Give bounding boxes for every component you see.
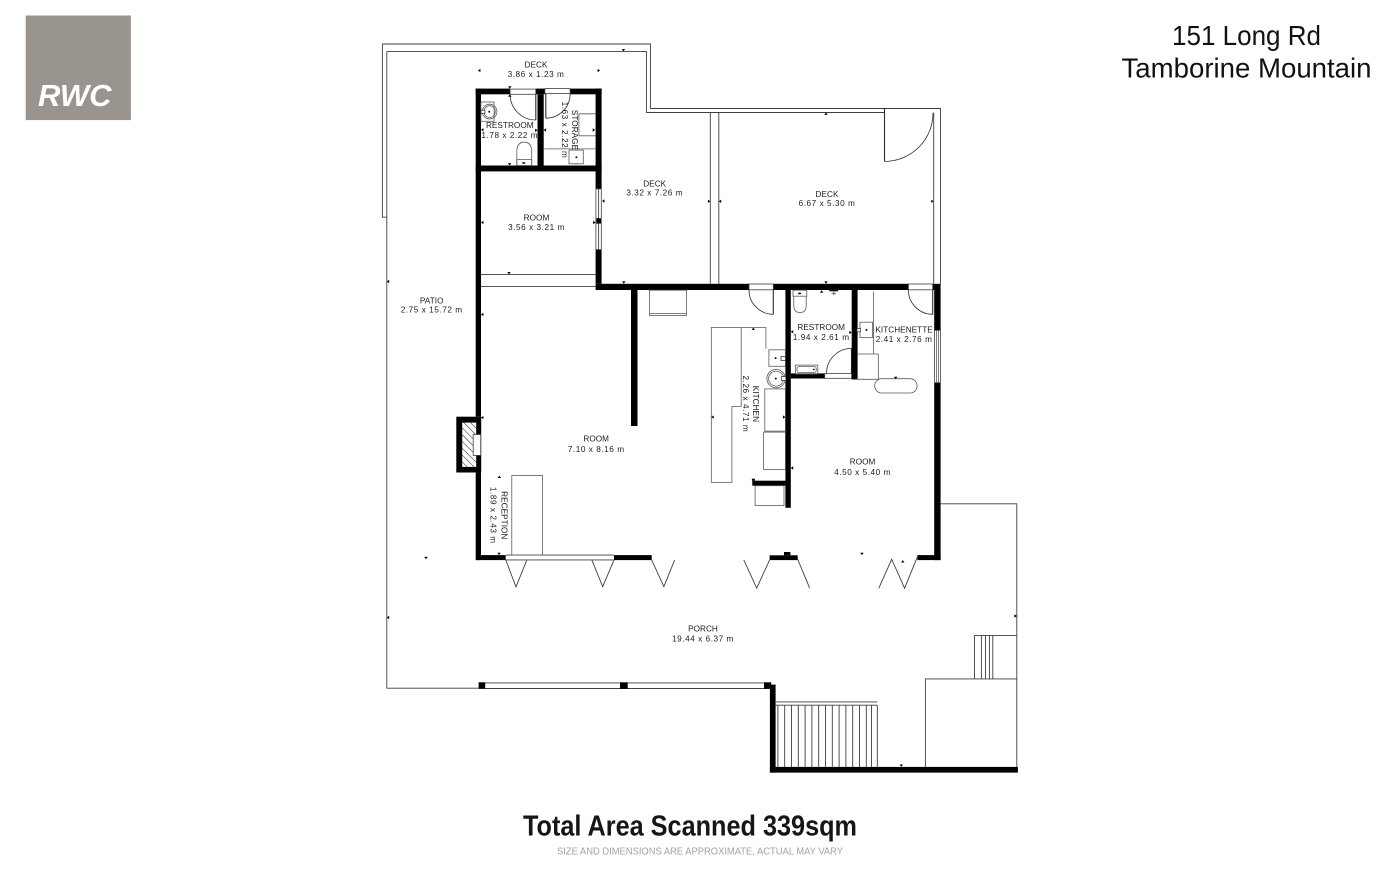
svg-text:1.78 x 2.22 m: 1.78 x 2.22 m: [481, 131, 538, 140]
svg-text:RESTROOM: RESTROOM: [486, 121, 534, 130]
svg-text:3.32 x 7.26 m: 3.32 x 7.26 m: [626, 188, 683, 197]
svg-text:KITCHENETTE: KITCHENETTE: [875, 325, 933, 334]
svg-text:2.41 x 2.76 m: 2.41 x 2.76 m: [876, 335, 933, 344]
svg-text:DECK: DECK: [816, 190, 839, 199]
svg-text:Total Area Scanned 339sqm: Total Area Scanned 339sqm: [523, 811, 857, 843]
svg-text:6.67 x 5.30 m: 6.67 x 5.30 m: [799, 199, 856, 208]
svg-text:RWC: RWC: [38, 78, 112, 113]
svg-text:1.89 x 2.43 m: 1.89 x 2.43 m: [489, 487, 498, 544]
svg-text:3.86 x 1.23 m: 3.86 x 1.23 m: [508, 70, 565, 79]
svg-text:151 Long Rd: 151 Long Rd: [1172, 20, 1321, 51]
svg-text:4.50 x 5.40 m: 4.50 x 5.40 m: [834, 468, 891, 477]
svg-text:ROOM: ROOM: [583, 434, 609, 443]
svg-text:PATIO: PATIO: [420, 296, 444, 305]
svg-text:2.75 x 15.72 m: 2.75 x 15.72 m: [401, 306, 463, 315]
svg-text:KITCHEN: KITCHEN: [751, 386, 760, 422]
svg-text:DECK: DECK: [525, 60, 548, 69]
svg-text:2.26 x 4.71 m: 2.26 x 4.71 m: [741, 376, 750, 433]
svg-text:RECEPTION: RECEPTION: [499, 491, 508, 539]
svg-text:1.94 x 2.61 m: 1.94 x 2.61 m: [793, 333, 850, 342]
svg-text:RESTROOM: RESTROOM: [797, 323, 845, 332]
svg-text:SIZE AND DIMENSIONS ARE APPROX: SIZE AND DIMENSIONS ARE APPROXIMATE, ACT…: [557, 847, 843, 858]
svg-text:7.10 x 8.16 m: 7.10 x 8.16 m: [568, 445, 625, 454]
svg-text:PORCH: PORCH: [688, 624, 718, 633]
svg-text:ROOM: ROOM: [850, 458, 876, 467]
svg-text:3.56 x 3.21 m: 3.56 x 3.21 m: [508, 223, 565, 232]
svg-text:ROOM: ROOM: [524, 213, 550, 222]
svg-text:STORAGE: STORAGE: [570, 110, 579, 151]
svg-text:19.44 x 6.37 m: 19.44 x 6.37 m: [672, 635, 734, 644]
svg-text:Tamborine Mountain: Tamborine Mountain: [1122, 53, 1372, 84]
svg-text:1.63 x 2.22 m: 1.63 x 2.22 m: [560, 102, 569, 159]
svg-text:DECK: DECK: [643, 179, 666, 188]
